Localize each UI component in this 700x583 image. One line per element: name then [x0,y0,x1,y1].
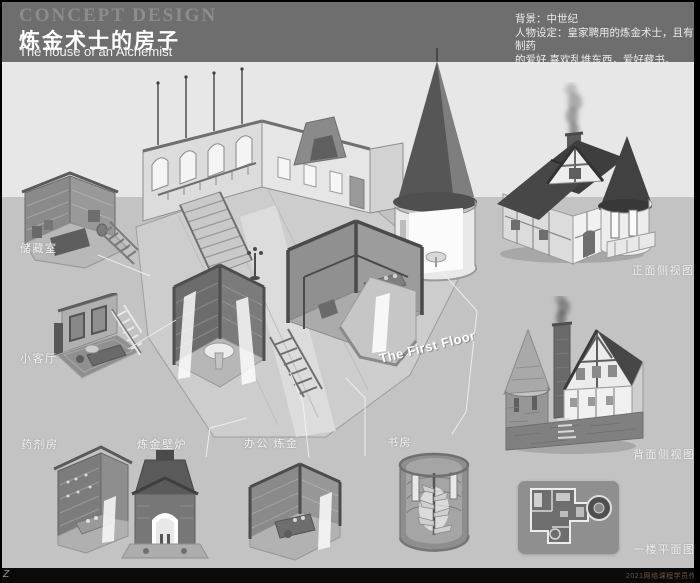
room-label-storage: 储藏室 [20,240,58,256]
kicker-text: CONCEPT DESIGN [19,5,217,27]
main-first-floor-cutaway-illustration [118,45,478,445]
note-line-background: 背景：中世纪 [515,13,700,27]
office-alchemy-illustration [240,452,350,565]
frame-edge-left [0,0,2,583]
character-setting-notes: 背景：中世纪 人物设定：皇家聘用的炼金术士，且有制药 的爱好.喜欢乱堆东西，爱好… [515,13,700,67]
study-tower-illustration [390,437,478,561]
room-label-parlor: 小客厅 [20,350,58,366]
back-smoke [555,296,570,326]
floor-plan-illustration [518,481,619,554]
floor-plan-card [518,481,619,554]
storage-room-illustration [10,168,138,286]
room-label-study: 书房 [387,434,412,450]
hearth-canopy [294,117,346,165]
view-label-back: 背面侧视图 [633,446,696,462]
note-line-character-2: 的爱好.喜欢乱堆东西，爱好藏书。 [515,54,700,68]
corner-mark: Z [3,569,9,580]
room-label-pharmacy: 药剂房 [21,436,59,452]
office-alchemy-room [174,265,264,387]
room-label-alchemy-hearth: 炼金壁炉 [137,436,187,452]
note-line-character-1: 人物设定：皇家聘用的炼金术士，且有制药 [515,27,700,54]
house-front-view-illustration [487,82,667,268]
footer-band [0,568,700,583]
view-label-plan: 一楼平面图 [633,541,696,557]
watermark-text: 2021网络课程学员作品 [626,571,700,581]
frame-edge-top [0,0,700,2]
parlor-illustration [42,293,142,397]
tower-spire [393,48,477,212]
view-label-front: 正面侧视图 [632,262,695,278]
house-back-view-illustration [500,296,648,458]
frame-edge-right [694,0,700,583]
room-label-office-alchemy: 办公 炼金 [244,435,299,451]
front-smoke [565,83,582,138]
alchemy-hearth-illustration [120,448,210,566]
concept-design-sheet: CONCEPT DESIGN 炼金术士的房子 The house of an A… [0,0,700,583]
back-turret [504,330,550,438]
